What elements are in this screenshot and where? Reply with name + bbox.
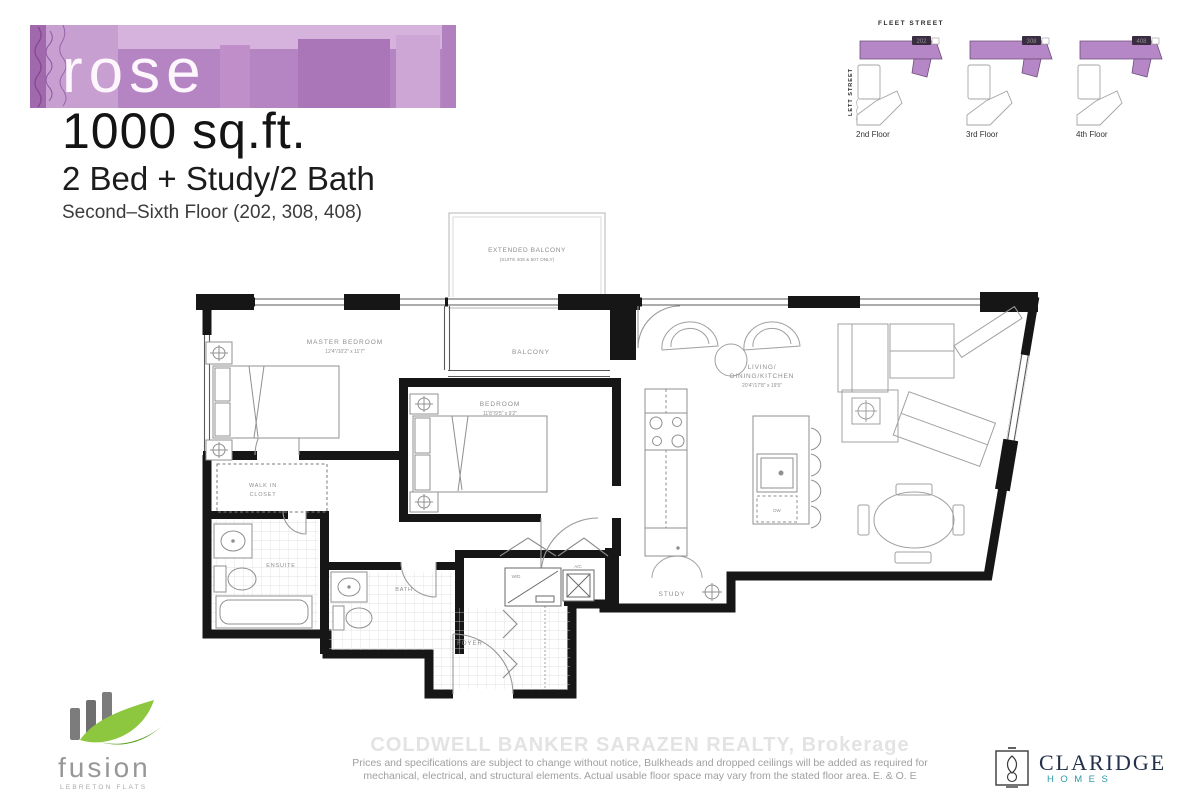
claridge-crest-icon	[993, 746, 1031, 790]
fusion-name: fusion	[58, 752, 151, 784]
keyplan-unit-number: 202	[916, 39, 927, 45]
keyplan-map: 202	[852, 29, 948, 129]
bath-label: BATH	[395, 587, 412, 593]
keyplan-4th-floor: 408 4th Floor	[1072, 20, 1168, 139]
master-bedroom-furniture	[206, 342, 339, 460]
fusion-logo-icon	[52, 686, 182, 752]
ac-label: A/C	[574, 564, 582, 569]
extended-balcony-note: (SUITE 408 & 507 ONLY)	[500, 257, 555, 263]
wic-label-2: CLOSET	[250, 492, 277, 498]
keyplan-floor-label: 4th Floor	[1072, 130, 1168, 139]
wall-blocks	[196, 292, 1038, 654]
disclaimer-line-2: mechanical, electrical, and structural e…	[320, 770, 960, 782]
fusion-logo: fusion LEBRETON FLATS	[52, 686, 192, 757]
keyplan-map: 308	[962, 29, 1058, 129]
plan-configuration: 2 Bed + Study/2 Bath	[62, 162, 375, 195]
balcony-label: BALCONY	[512, 349, 550, 356]
keyplan-unit-number: 408	[1136, 39, 1147, 45]
banner-photo-column	[298, 39, 390, 108]
wic-label-1: WALK IN	[249, 483, 277, 489]
brokerage-watermark: COLDWELL BANKER SARAZEN REALTY, Brokerag…	[330, 734, 950, 757]
floor-plan: EXTENDED BALCONY (SUITE 408 & 507 ONLY)	[170, 195, 1060, 720]
bedroom-label: BEDROOM	[480, 401, 521, 408]
living-label-1: LIVING/	[748, 364, 777, 371]
banner-photo-column	[442, 25, 456, 108]
kitchen: DW	[645, 389, 821, 556]
study-label: STUDY	[658, 591, 685, 598]
living-furniture	[662, 307, 1022, 563]
master-bedroom-dims: 12'4"/10'2" x 11'7"	[325, 349, 365, 355]
fusion-subtitle: LEBRETON FLATS	[60, 784, 147, 791]
foyer-label: FOYER	[457, 641, 483, 647]
claridge-subtitle: HOMES	[1047, 774, 1114, 785]
balcony: BALCONY	[445, 306, 611, 377]
floorplan-page: { "header": { "plan_name": "rose", "area…	[0, 0, 1200, 805]
lett-street-label: LETT STREET	[848, 68, 854, 116]
keyplan-unit-number: 308	[1026, 39, 1037, 45]
bedroom-furniture	[410, 394, 547, 512]
banner-photo-column	[396, 35, 440, 108]
extended-balcony: EXTENDED BALCONY (SUITE 408 & 507 ONLY)	[449, 213, 605, 308]
keyplan-map: 408	[1072, 29, 1168, 129]
plan-area: 1000 sq.ft.	[62, 106, 375, 156]
ensuite-label: ENSUITE	[266, 563, 295, 569]
living-dims: 20'4"/17'8" x 19'5"	[742, 383, 782, 389]
plan-name: rose	[62, 41, 207, 103]
claridge-name: CLARIDGE	[1039, 750, 1166, 776]
wd-label: W/D	[512, 574, 521, 579]
bedroom-dims: 11'8"/9'5" x 9'2"	[483, 411, 517, 417]
keyplan-floor-label: 3rd Floor	[962, 130, 1058, 139]
living-label-2: DINING/KITCHEN	[730, 373, 794, 380]
keyplan-floor-label: 2nd Floor	[852, 130, 948, 139]
walk-in-closet: WALK IN CLOSET	[217, 464, 327, 512]
banner-photo-column	[220, 45, 250, 108]
keyplan-2nd-floor: FLEET STREET LETT STREET 202 2nd Floor	[852, 20, 948, 139]
study: STUDY	[652, 556, 722, 601]
extended-balcony-label: EXTENDED BALCONY	[488, 247, 566, 254]
plan-banner: rose	[30, 25, 456, 108]
utility-closet: W/D A/C	[505, 564, 594, 606]
disclaimer-line-1: Prices and specifications are subject to…	[320, 757, 960, 769]
fleet-street-label: FLEET STREET	[878, 20, 944, 27]
keyplan-3rd-floor: 308 3rd Floor	[962, 20, 1058, 139]
dw-label: DW	[773, 508, 781, 513]
master-bedroom-label: MASTER BEDROOM	[307, 339, 383, 346]
keyplan-strip: FLEET STREET LETT STREET 202 2nd Floor 3…	[852, 20, 1168, 139]
